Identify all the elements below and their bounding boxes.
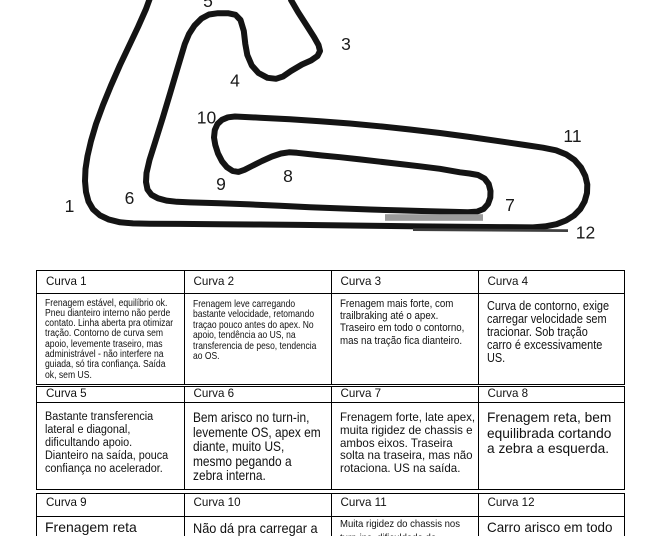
svg-text:5: 5 xyxy=(203,0,213,11)
svg-text:3: 3 xyxy=(341,34,351,54)
svg-text:4: 4 xyxy=(230,71,240,91)
svg-text:7: 7 xyxy=(505,195,515,215)
svg-text:8: 8 xyxy=(283,166,293,186)
svg-text:12: 12 xyxy=(576,223,595,243)
svg-text:11: 11 xyxy=(563,126,581,146)
svg-text:10: 10 xyxy=(197,108,217,128)
svg-text:9: 9 xyxy=(216,174,226,194)
svg-text:1: 1 xyxy=(65,196,75,216)
svg-text:6: 6 xyxy=(125,188,135,208)
